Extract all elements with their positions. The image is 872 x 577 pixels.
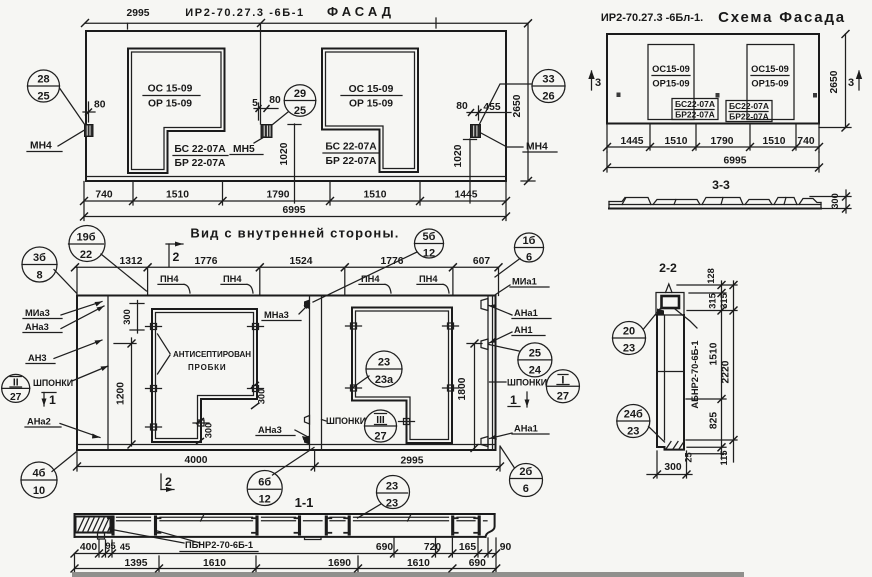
svg-text:3: 3 [595,77,601,89]
svg-text:1510: 1510 [665,136,688,147]
svg-text:27: 27 [374,431,386,443]
svg-text:АНа3: АНа3 [25,322,49,332]
svg-text:1510: 1510 [763,136,786,147]
svg-text:МИа1: МИа1 [512,277,537,287]
svg-text:ОР15-09: ОР15-09 [751,79,788,89]
svg-text:690: 690 [469,558,486,569]
svg-text:3: 3 [848,77,854,89]
svg-text:19б: 19б [76,232,95,244]
svg-text:ПН4: ПН4 [160,274,179,284]
svg-text:4б: 4б [33,468,46,480]
svg-text:ИР2-70.27.3 -6Бл-1.: ИР2-70.27.3 -6Бл-1. [601,12,703,24]
svg-text:24б: 24б [624,409,643,421]
svg-text:6: 6 [526,252,532,264]
svg-text:23: 23 [627,426,639,438]
svg-text:1200: 1200 [116,382,127,405]
svg-text:24: 24 [529,365,542,377]
svg-text:6б: 6б [258,477,271,489]
svg-text:1610: 1610 [407,558,430,569]
svg-text:1776: 1776 [195,256,218,267]
svg-text:12: 12 [259,494,271,506]
svg-text:2220: 2220 [721,360,732,383]
svg-text:1510: 1510 [709,342,720,365]
svg-text:1: 1 [510,393,517,407]
svg-text:23: 23 [623,343,635,355]
svg-text:1б: 1б [523,235,536,247]
svg-text:45: 45 [120,542,130,552]
svg-text:720: 720 [424,542,441,553]
svg-text:ФАСАД: ФАСАД [327,4,395,19]
svg-text:6: 6 [523,483,529,495]
svg-text:25: 25 [294,105,306,117]
svg-text:1445: 1445 [455,190,478,201]
svg-text:АНа3: АНа3 [258,425,282,435]
svg-text:БР22-07А: БР22-07А [729,112,769,122]
svg-text:АНа2: АНа2 [27,417,51,427]
svg-text:90: 90 [500,542,512,553]
svg-text:МН5: МН5 [233,144,255,155]
svg-text:ШПОНКИ: ШПОНКИ [33,378,73,388]
svg-text:АНТИСЕПТИРОВАН: АНТИСЕПТИРОВАН [173,350,251,359]
svg-text:27: 27 [10,392,22,403]
svg-text:8: 8 [36,270,42,282]
svg-text:ОР 15-09: ОР 15-09 [349,99,393,110]
svg-text:20: 20 [623,326,635,338]
svg-text:6995: 6995 [724,156,747,167]
svg-text:3-3: 3-3 [712,178,730,192]
svg-text:МН4: МН4 [526,142,548,153]
svg-text:2650: 2650 [829,70,840,93]
svg-text:1524: 1524 [290,256,313,267]
svg-text:300: 300 [257,389,267,405]
svg-text:1776: 1776 [381,256,404,267]
svg-text:2-2: 2-2 [659,261,677,275]
svg-text:АН3: АН3 [28,353,47,363]
svg-text:ОС 15-09: ОС 15-09 [349,84,394,95]
svg-text:3б: 3б [33,252,46,264]
svg-text:2995: 2995 [401,456,424,467]
svg-text:25: 25 [684,452,694,462]
svg-text:95: 95 [105,541,115,551]
svg-text:10: 10 [33,485,45,497]
svg-text:607: 607 [473,256,490,267]
svg-text:БС 22-07А: БС 22-07А [174,144,226,155]
svg-text:МН4: МН4 [30,141,52,152]
svg-text:2650: 2650 [512,94,523,117]
svg-text:ПРОБКИ: ПРОБКИ [188,363,226,372]
svg-text:ПН4: ПН4 [223,274,242,284]
svg-text:ОР15-09: ОР15-09 [652,79,689,89]
svg-text:825: 825 [709,412,720,429]
svg-text:ПН4: ПН4 [361,274,380,284]
svg-text:АНа1: АНа1 [514,424,538,434]
svg-text:1690: 1690 [328,558,351,569]
svg-text:4000: 4000 [185,455,208,466]
svg-text:БР 22-07А: БР 22-07А [175,158,226,169]
svg-text:315: 315 [719,293,729,309]
svg-text:23: 23 [386,481,398,493]
svg-text:1020: 1020 [453,144,464,167]
svg-text:1790: 1790 [267,190,290,201]
svg-text:ПН4: ПН4 [419,274,438,284]
svg-text:БР22-07А: БР22-07А [675,110,715,120]
svg-text:Вид с внутренней стороны.: Вид с внутренней стороны. [190,226,399,241]
svg-text:128: 128 [706,268,716,284]
svg-text:АН1: АН1 [514,325,533,335]
svg-text:ШПОНКИ: ШПОНКИ [326,416,366,426]
svg-text:ОС15-09: ОС15-09 [652,64,690,74]
svg-text:27: 27 [557,391,569,403]
svg-text:1020: 1020 [279,142,290,165]
svg-text:165: 165 [459,542,476,553]
svg-text:23: 23 [378,357,390,369]
svg-text:АНа1: АНа1 [514,308,538,318]
svg-text:80: 80 [94,100,106,111]
svg-text:1312: 1312 [120,256,143,267]
svg-text:1510: 1510 [364,190,387,201]
svg-text:МНа3: МНа3 [264,310,289,320]
svg-text:ОР 15-09: ОР 15-09 [148,99,192,110]
svg-text:1610: 1610 [203,558,226,569]
svg-text:29: 29 [294,88,306,100]
svg-text:12: 12 [423,248,435,260]
svg-text:МИа3: МИа3 [25,308,50,318]
svg-text:БС22-07А: БС22-07А [675,99,715,109]
svg-text:ОС 15-09: ОС 15-09 [148,84,193,95]
svg-text:5: 5 [252,98,258,109]
svg-text:400: 400 [80,542,97,553]
svg-text:2995: 2995 [127,8,150,19]
svg-text:300: 300 [664,462,681,473]
svg-text:28: 28 [37,74,49,86]
svg-text:БС 22-07А: БС 22-07А [325,142,377,153]
svg-text:115: 115 [719,451,729,466]
svg-text:25: 25 [37,91,49,103]
svg-text:2: 2 [165,475,172,489]
svg-text:80: 80 [456,101,468,112]
svg-text:1445: 1445 [621,136,644,147]
svg-text:26: 26 [542,91,554,103]
svg-text:22: 22 [80,249,92,261]
svg-text:1-1: 1-1 [295,495,314,510]
svg-text:2: 2 [173,250,180,264]
svg-text:33: 33 [542,74,554,86]
svg-text:23: 23 [386,498,398,510]
svg-text:ИР2-70.27.3 -6Б-1: ИР2-70.27.3 -6Б-1 [185,7,304,19]
svg-text:5б: 5б [423,231,436,243]
svg-text:Схема Фасада: Схема Фасада [718,9,846,26]
svg-text:1790: 1790 [711,136,734,147]
svg-text:690: 690 [376,542,393,553]
svg-text:740: 740 [95,190,112,201]
svg-text:1510: 1510 [166,190,189,201]
svg-text:6995: 6995 [283,205,306,216]
svg-text:2б: 2б [519,466,532,478]
svg-text:300: 300 [122,309,132,325]
svg-text:1: 1 [49,393,56,407]
svg-text:БС22-07А: БС22-07А [729,101,769,111]
svg-text:315: 315 [708,293,718,309]
svg-text:1395: 1395 [125,558,148,569]
svg-text:АБНР2-70-6Б-1: АБНР2-70-6Б-1 [690,340,700,408]
svg-text:23а: 23а [375,374,394,386]
svg-text:БР 22-07А: БР 22-07А [326,156,377,167]
svg-text:ШПОНКИ: ШПОНКИ [507,378,547,388]
svg-text:740: 740 [797,136,814,147]
svg-text:ОС15-09: ОС15-09 [751,64,789,74]
svg-text:80: 80 [269,95,281,106]
svg-text:25: 25 [529,348,541,360]
svg-text:1800: 1800 [457,377,468,400]
svg-text:300: 300 [830,193,840,209]
svg-text:300: 300 [204,423,214,439]
